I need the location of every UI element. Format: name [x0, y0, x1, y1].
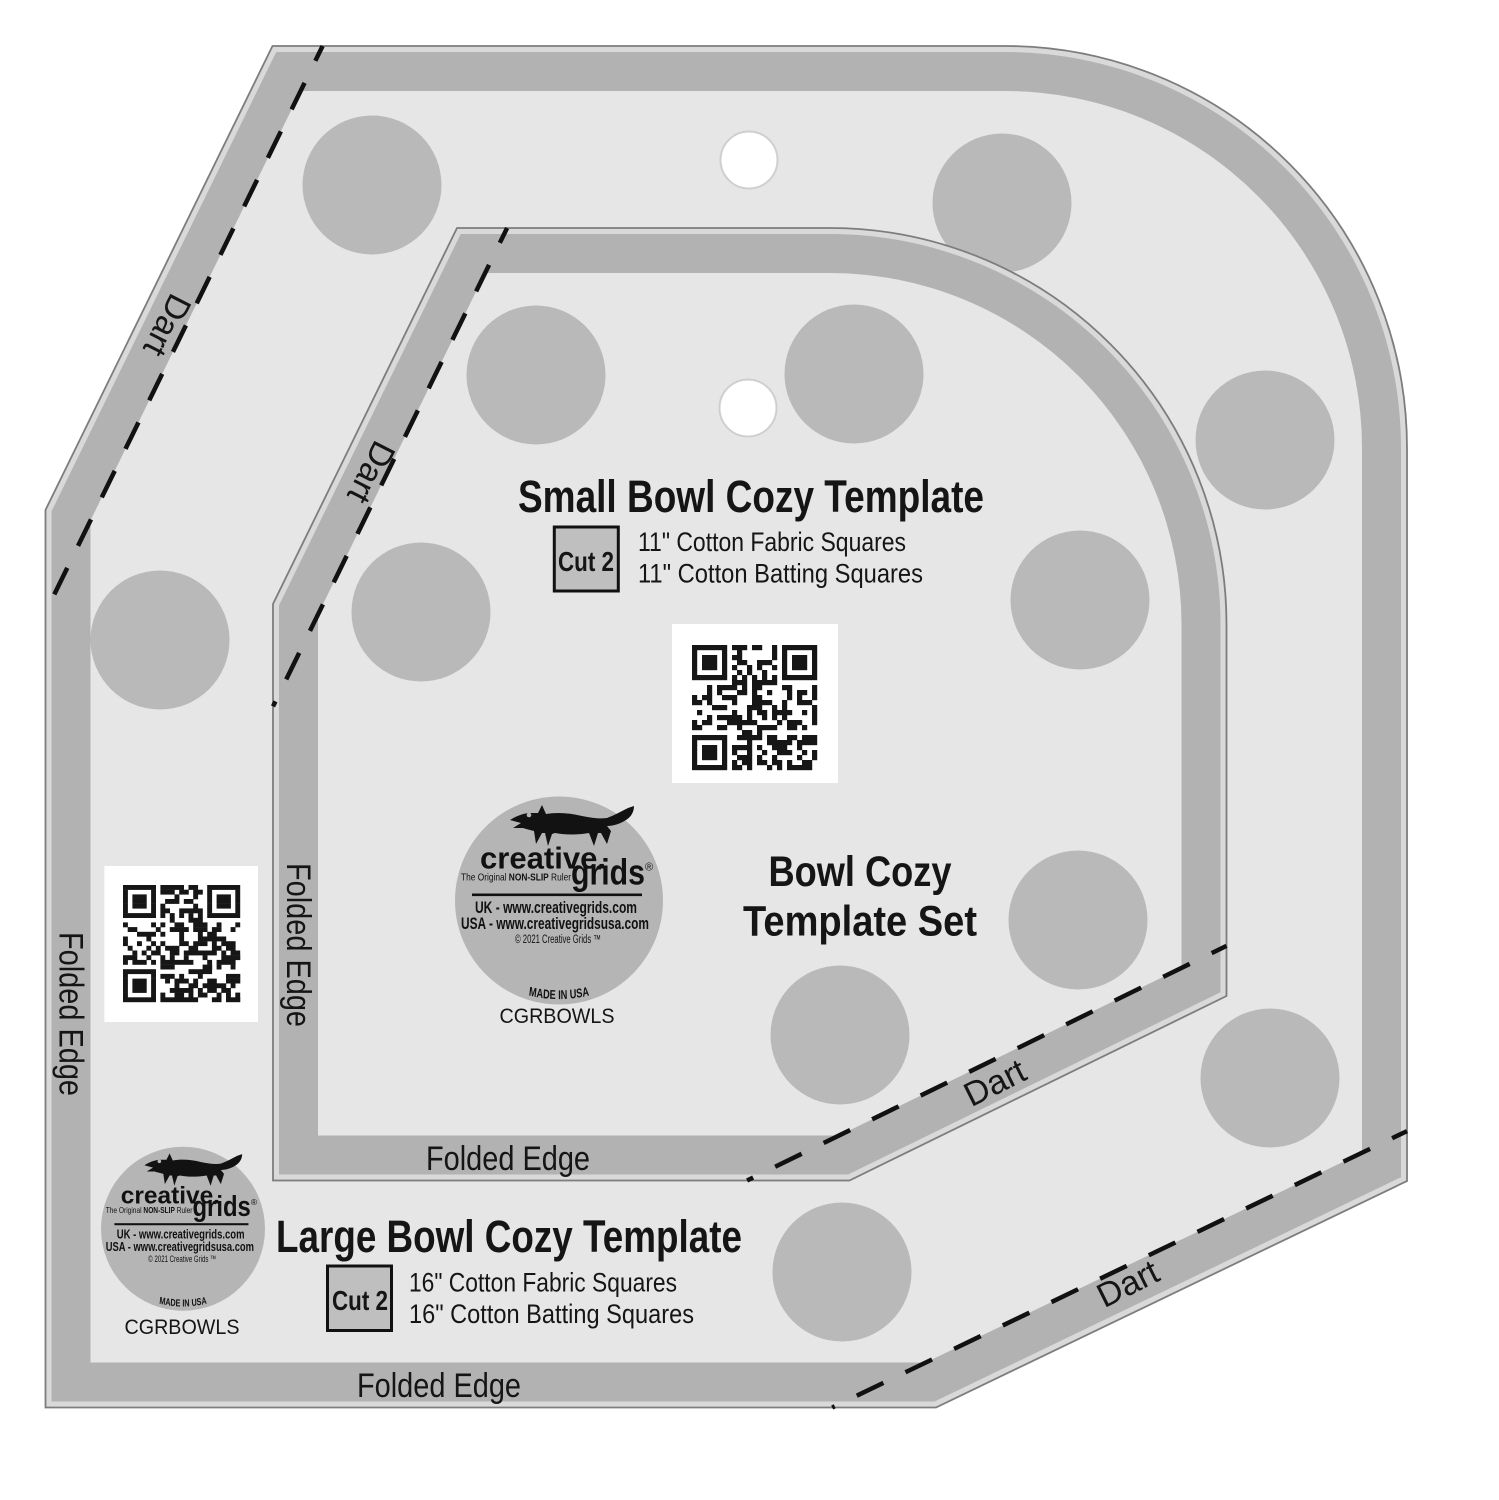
svg-text:CGRBOWLS: CGRBOWLS: [500, 1004, 615, 1028]
svg-text:Folded Edge: Folded Edge: [357, 1367, 521, 1405]
svg-text:®: ®: [251, 1197, 258, 1207]
svg-text:®: ®: [645, 862, 653, 874]
svg-text:USA - www.creativegridsusa.com: USA - www.creativegridsusa.com: [106, 1239, 254, 1254]
svg-text:CGRBOWLS: CGRBOWLS: [125, 1315, 240, 1339]
svg-text:16" Cotton Fabric Squares: 16" Cotton Fabric Squares: [409, 1268, 677, 1298]
svg-text:USA - www.creativegridsusa.com: USA - www.creativegridsusa.com: [461, 915, 649, 933]
svg-text:The Original NON-SLIP Ruler: The Original NON-SLIP Ruler: [461, 872, 571, 884]
svg-text:Cut 2: Cut 2: [558, 546, 614, 577]
svg-text:11" Cotton Batting Squares: 11" Cotton Batting Squares: [638, 559, 923, 589]
svg-text:Small Bowl Cozy Template: Small Bowl Cozy Template: [518, 471, 984, 522]
svg-text:16" Cotton Batting Squares: 16" Cotton Batting Squares: [409, 1299, 694, 1329]
svg-text:© 2021 Creative Grids ™: © 2021 Creative Grids ™: [148, 1254, 216, 1264]
svg-text:grids: grids: [571, 852, 645, 893]
svg-text:© 2021 Creative Grids ™: © 2021 Creative Grids ™: [515, 934, 601, 946]
svg-text:grids: grids: [192, 1191, 250, 1223]
svg-text:The Original NON-SLIP Ruler: The Original NON-SLIP Ruler: [106, 1206, 193, 1215]
svg-text:Template Set: Template Set: [743, 898, 977, 946]
svg-text:Folded Edge: Folded Edge: [426, 1140, 590, 1178]
svg-text:Folded Edge: Folded Edge: [279, 863, 317, 1027]
svg-text:Cut 2: Cut 2: [332, 1285, 388, 1316]
svg-text:Bowl Cozy: Bowl Cozy: [769, 848, 952, 896]
svg-text:Large Bowl Cozy Template: Large Bowl Cozy Template: [276, 1211, 742, 1262]
svg-text:Folded Edge: Folded Edge: [52, 932, 90, 1096]
svg-text:11" Cotton Fabric Squares: 11" Cotton Fabric Squares: [638, 527, 906, 557]
